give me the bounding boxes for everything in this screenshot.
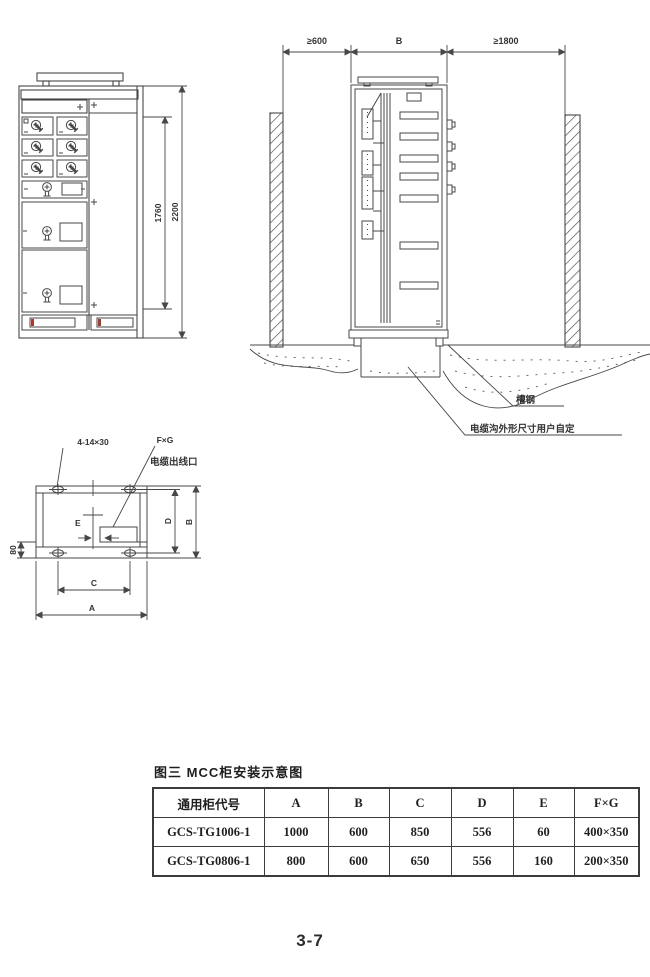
red-latch-mark [98, 319, 101, 326]
col-header-code: 通用柜代号 [153, 788, 264, 818]
cell-fxg: 200×350 [574, 847, 639, 877]
dim-inner-height: 1760 [153, 203, 163, 222]
figure-table-section: 图三 MCC柜安装示意图 通用柜代号 A B C D E F×G GCS-TG1… [152, 762, 640, 877]
e-label: E [75, 518, 81, 528]
col-header-fxg: F×G [574, 788, 639, 818]
plan-dimensions [17, 486, 201, 620]
c-label: C [91, 578, 97, 588]
terminal-strips [362, 109, 373, 239]
spec-table: 通用柜代号 A B C D E F×G GCS-TG1006-1 1000 60… [152, 787, 640, 877]
figure-caption: 图三 MCC柜安装示意图 [154, 762, 640, 781]
dim-depth: B [396, 36, 403, 46]
indicator-lamp-icon [24, 119, 28, 123]
dim-front-clearance: ≥1800 [494, 36, 519, 46]
table-header-row: 通用柜代号 A B C D E F×G [153, 788, 639, 818]
cell-a: 1000 [264, 818, 328, 847]
cable-outlet-label: 电缆出线口 [150, 456, 198, 468]
lifting-beam [37, 73, 123, 86]
cell-d: 556 [451, 847, 513, 877]
height-dimensions [143, 86, 187, 338]
cabinet-side [349, 77, 455, 346]
red-latch-mark [31, 319, 34, 326]
clearance-dimensions [283, 45, 565, 115]
base-plan [36, 446, 155, 559]
col-header-c: C [389, 788, 451, 818]
door-knobs [447, 120, 455, 194]
trench-note-label: 电缆沟外形尺寸用户自定 [470, 423, 575, 435]
base-channel [349, 330, 448, 346]
cell-a: 800 [264, 847, 328, 877]
col-header-d: D [451, 788, 513, 818]
d-label: D [163, 518, 173, 524]
offset-80-label: 80 [8, 545, 18, 555]
col-header-a: A [264, 788, 328, 818]
left-wall [270, 113, 283, 347]
cable-trench [361, 346, 440, 377]
walls [270, 113, 580, 347]
dim-rear-clearance: ≥600 [307, 36, 327, 46]
col-header-b: B [328, 788, 389, 818]
manual-page: 1760 2200 ≥600 B ≥1800 [0, 0, 650, 977]
table-row: GCS-TG0806-1 800 600 650 556 160 200×350 [153, 847, 639, 877]
concrete-speckle [258, 351, 646, 392]
large-drawer-units [22, 202, 87, 312]
cell-code: GCS-TG1006-1 [153, 818, 264, 847]
cell-b: 600 [328, 847, 389, 877]
col-header-e: E [513, 788, 574, 818]
cell-code: GCS-TG0806-1 [153, 847, 264, 877]
table-row: GCS-TG1006-1 1000 600 850 556 60 400×350 [153, 818, 639, 847]
cell-c: 850 [389, 818, 451, 847]
cell-b: 600 [328, 818, 389, 847]
cell-c: 650 [389, 847, 451, 877]
cell-e: 60 [513, 818, 574, 847]
vent-strips [22, 315, 137, 330]
channel-steel-label: 槽钢 [516, 394, 536, 406]
cabinet-front-outline [19, 73, 143, 338]
right-wall [565, 115, 580, 347]
shelves [400, 112, 438, 289]
small-drawer-grid [22, 117, 87, 177]
page-number: 3-7 [270, 931, 350, 951]
cell-fxg: 400×350 [574, 818, 639, 847]
side-view-drawing: ≥600 B ≥1800 [250, 25, 650, 460]
fxg-label: F×G [157, 435, 174, 445]
holes-label: 4-14×30 [77, 437, 109, 447]
cell-d: 556 [451, 818, 513, 847]
b-label: B [184, 519, 194, 525]
plan-view-drawing: 4-14×30 F×G 电缆出线口 [5, 430, 235, 640]
dim-total-height: 2200 [170, 202, 180, 221]
cell-e: 160 [513, 847, 574, 877]
ground-and-trench [250, 345, 650, 408]
a-label: A [89, 603, 95, 613]
front-view-drawing: 1760 2200 [10, 60, 210, 355]
wide-drawer-unit [22, 181, 87, 198]
